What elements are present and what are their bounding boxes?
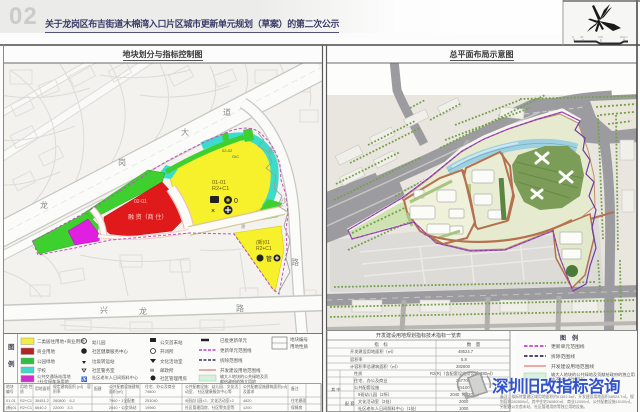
svg-text:道: 道 <box>223 107 231 117</box>
svg-text:100: 100 <box>598 35 603 39</box>
svg-text:02-02: 02-02 <box>222 148 233 153</box>
svg-text:GIC: GIC <box>232 154 239 159</box>
svg-text:兴: 兴 <box>100 306 108 315</box>
svg-text:融 资（商 住）: 融 资（商 住） <box>128 213 167 221</box>
svg-text:0: 0 <box>234 198 238 205</box>
svg-text:管: 管 <box>266 255 272 263</box>
svg-text:✉: ✉ <box>150 368 154 374</box>
svg-text:路: 路 <box>236 303 244 313</box>
svg-text:(新)01: (新)01 <box>256 239 270 246</box>
svg-text:大: 大 <box>181 127 189 137</box>
svg-text:岗: 岗 <box>118 158 126 167</box>
svg-text:路: 路 <box>291 257 299 267</box>
svg-text:02-01: 02-01 <box>134 199 147 205</box>
svg-text:R2+C1: R2+C1 <box>212 186 229 192</box>
svg-text:R2+C1: R2+C1 <box>256 246 272 252</box>
svg-text:40: 40 <box>580 35 584 39</box>
svg-text:♿: ♿ <box>81 376 87 383</box>
svg-text:沙: 沙 <box>280 197 287 205</box>
svg-text:×: × <box>211 208 215 215</box>
svg-text:路: 路 <box>241 223 246 230</box>
svg-text:布: 布 <box>268 146 275 155</box>
svg-text:200m: 200m <box>620 35 628 39</box>
svg-text:龙: 龙 <box>40 200 48 210</box>
svg-text:龙: 龙 <box>139 306 147 316</box>
